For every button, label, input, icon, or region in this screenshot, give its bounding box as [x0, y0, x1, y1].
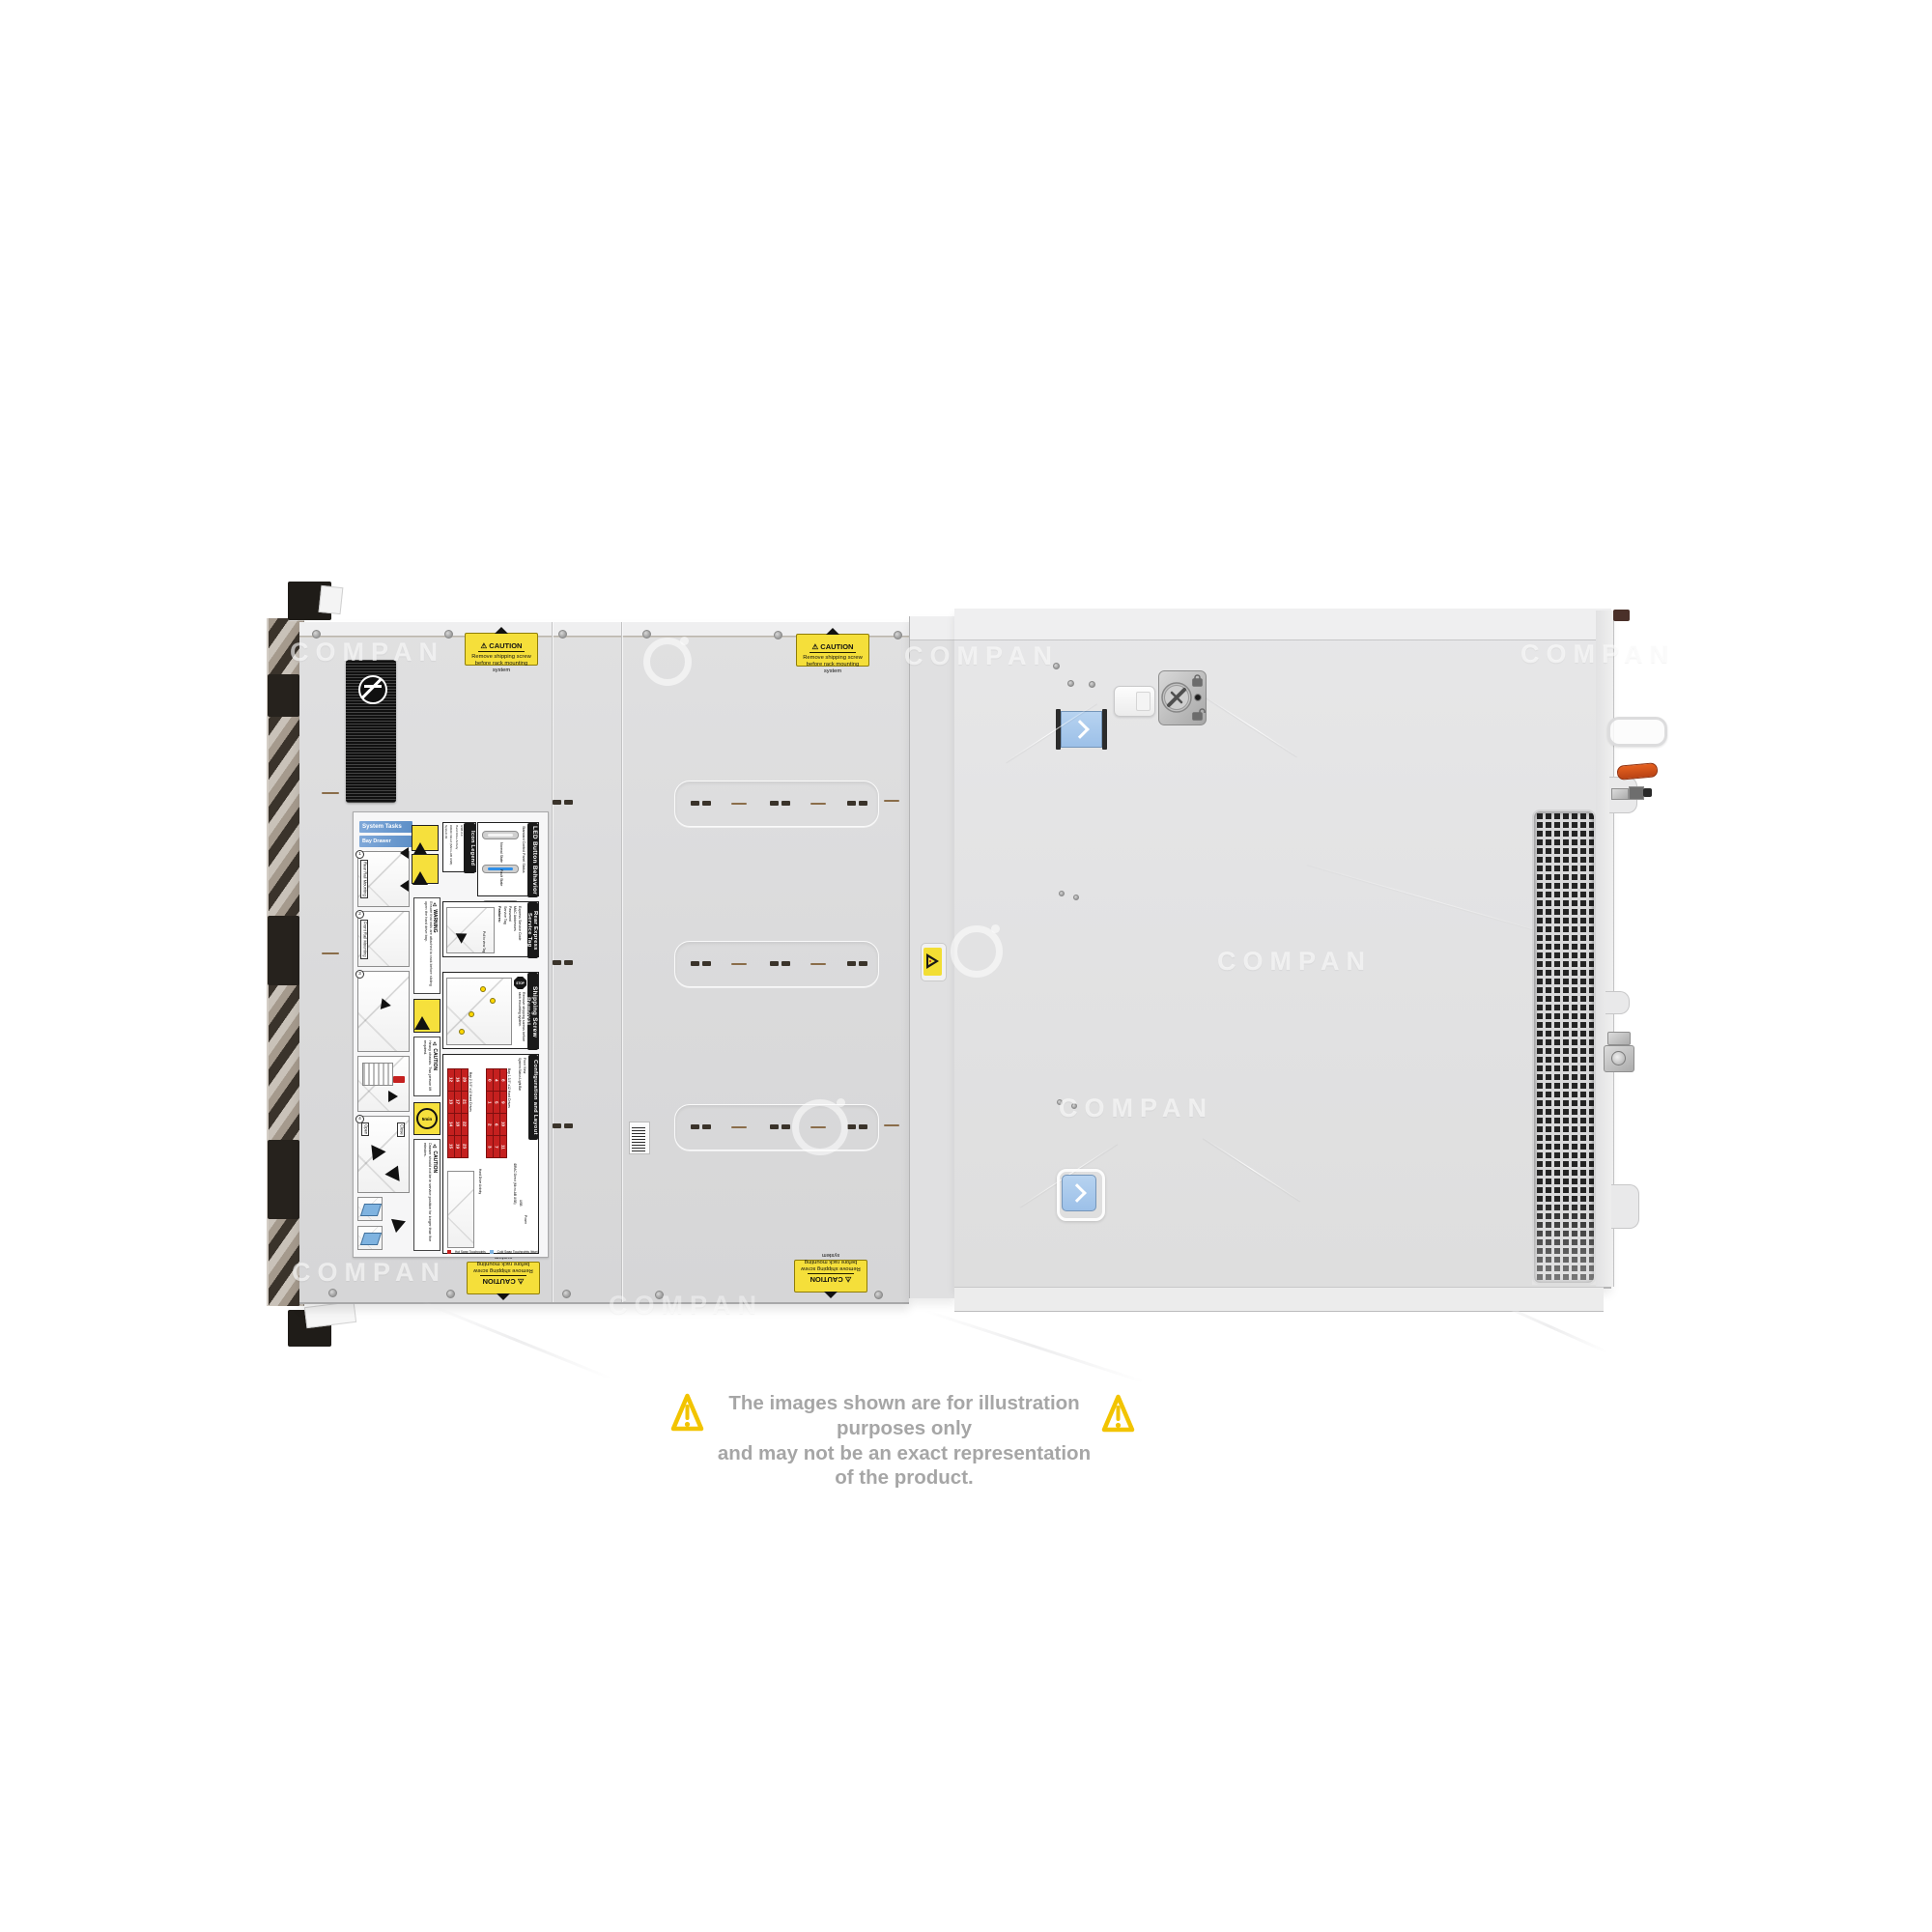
led-behavior-title: LED Button Behavior: [527, 823, 538, 897]
drive-number-cell: 23: [462, 1136, 468, 1157]
feature-item: Password: [508, 906, 512, 954]
rail-dark-block: [268, 916, 299, 985]
caution-sticker: ⚠ CAUTION Remove shipping screw before r…: [796, 634, 869, 667]
rivet: [1073, 895, 1079, 900]
config-side-label: Power: [524, 1215, 527, 1224]
barcode-sticker: [629, 1122, 650, 1154]
configuration-title: Configuration and Layout: [528, 1055, 538, 1140]
config-side-label: iDRAC Direct (Micro-AB USB): [513, 1163, 517, 1231]
drive-number-cell: 9: [500, 1092, 506, 1113]
rear-edge-bump: [1611, 1184, 1639, 1229]
step-number: 4: [355, 1115, 364, 1123]
rear-pull-handle: [1607, 717, 1667, 747]
caution-drawer-box: ⚠ CAUTION Drawer should not be in servic…: [413, 1139, 440, 1251]
screw-head: [312, 630, 321, 639]
tip-hazard-pictogram: [412, 854, 439, 884]
rear-lower-latch: [1602, 1032, 1636, 1076]
handle-recess: [674, 781, 879, 827]
legend-cold-swap: Cold Swap Touchpoints (blue): [497, 1250, 538, 1254]
drive-number-cell: 15: [448, 1136, 454, 1157]
screw-head: [562, 1290, 571, 1298]
icon-legend-item: System ID: [444, 825, 448, 871]
led-fault-label: Fault State: [499, 869, 503, 886]
emboss-line: [1207, 697, 1297, 757]
touchpoint-legend: Hot Swap Touchpoints Cold Swap Touchpoin…: [447, 1250, 538, 1254]
release-touchpoint-lower: [1057, 1169, 1105, 1221]
warning-triangle-sticker: [921, 943, 947, 981]
disclaimer-line2: and may not be an exact representation o…: [715, 1441, 1094, 1492]
regulatory-label: [346, 660, 396, 803]
drive-number-cell: 12: [448, 1069, 454, 1091]
icon-legend-item: USB 2.0: [460, 825, 464, 871]
handle-recess: [674, 1104, 879, 1151]
rear-latch-cluster: [1611, 784, 1654, 804]
caution-heavy-text: Heavy chassis. Two person lift required.: [416, 1040, 433, 1094]
screw-head: [558, 630, 567, 639]
drive-number-cell: 7: [494, 1136, 499, 1157]
caution-heavy-box: ⚠ CAUTION Heavy chassis. Two person lift…: [413, 1037, 440, 1096]
feature-item: Express Service Code: [518, 906, 522, 954]
five-minute-badge: 5min: [413, 1102, 440, 1135]
legend-hot-swap: Hot Swap Touchpoints: [455, 1250, 486, 1254]
instruction-illustration: [357, 1056, 410, 1112]
disclaimer-line1: The images shown are for illustration pu…: [715, 1391, 1094, 1441]
reflection-streak: [422, 1301, 611, 1379]
step-tag: Front Rail Mounting: [360, 920, 368, 959]
step-tag: Close: [397, 1122, 405, 1137]
caution-title: ⚠ CAUTION: [478, 641, 526, 652]
led-subtitle: Standard Control Panel Status: [522, 826, 526, 894]
rivet: [1053, 663, 1060, 669]
rivet: [1067, 680, 1074, 687]
shipping-text: Remove shipping screws before rack mount…: [517, 992, 526, 1046]
drive-number-cell: 5: [494, 1092, 499, 1113]
rivet: [1059, 891, 1065, 896]
caution-line1: Remove shipping screw: [466, 654, 537, 661]
blue-latch-button: [1061, 711, 1102, 748]
stop-icon: STOP: [514, 977, 526, 989]
cover-top-flange: [954, 609, 1611, 640]
middle-strip-panel: [909, 616, 956, 1298]
drive-number-cell: 20: [462, 1069, 468, 1091]
screw-head: [444, 630, 453, 639]
disclaimer-text: The images shown are for illustration pu…: [715, 1391, 1094, 1491]
instruction-illustration: Open Close 4: [357, 1116, 410, 1193]
icon-legend-item: iDRAC Direct (Micro-AB USB): [449, 825, 453, 871]
rivet: [1089, 681, 1095, 688]
step-tag: Open: [361, 1122, 369, 1136]
icon-legend-title: Icon Legend: [464, 823, 475, 873]
instruction-illustration: 3: [357, 971, 410, 1052]
key-lock-plate: [1158, 670, 1207, 725]
instruction-illustration: Front Rail Mounting 2: [357, 911, 410, 967]
config-side-label: Hard Drive Activity: [478, 1169, 482, 1227]
slider-latch: [1114, 686, 1155, 717]
screw-head: [655, 1291, 664, 1299]
icon-legend-box: Icon Legend System ID iDRAC Direct (Micr…: [442, 822, 476, 872]
led-behavior-box: LED Button Behavior Standard Control Pan…: [477, 822, 539, 896]
warning-box: ⚠ WARNING Ensure that rails are attached…: [413, 897, 440, 994]
drive-number-cell: 8: [500, 1069, 506, 1091]
drive-number-cell: 16: [455, 1069, 461, 1091]
caution-sticker-flipped: ⚠ CAUTION Remove shipping screw before r…: [467, 1262, 540, 1294]
caution-drawer-text: Drawer should not be in service position…: [416, 1143, 433, 1249]
release-touchpoint-upper: [1056, 709, 1107, 750]
drive-number-cell: 0: [487, 1069, 493, 1091]
drive-number-cell: 10: [500, 1114, 506, 1135]
shipping-screw-box: Shipping Screw Removal STOP Remove shipp…: [442, 972, 539, 1049]
drive-number-cell: 4: [494, 1069, 499, 1091]
orange-release-lever: [1616, 762, 1658, 781]
screw-head: [328, 1289, 337, 1297]
screw-head: [894, 631, 902, 639]
drive-number-cell: 1: [487, 1092, 493, 1113]
rear-dark-tab: [1613, 610, 1630, 621]
bay-drawer-header: Bay Drawer Operation: [359, 836, 412, 847]
drive-number-cell: 13: [448, 1092, 454, 1113]
caution-sticker-flipped: ⚠ CAUTION Remove shipping screw before r…: [794, 1260, 867, 1293]
caution-sticker: ⚠ CAUTION Remove shipping screw before r…: [465, 633, 538, 666]
drive-number-cell: 22: [462, 1114, 468, 1135]
screw-head: [446, 1290, 455, 1298]
bay2-drive-grid: 121620131721141822151923: [447, 1068, 469, 1158]
bezel-bracket-bottom: [304, 1301, 356, 1328]
bezel-bracket-top: [319, 585, 344, 614]
top-cover-right: [954, 609, 1611, 1289]
service-tag-title: Rear Express Service Tag: [527, 902, 538, 958]
screw-head: [874, 1291, 883, 1299]
configuration-box: Configuration and Layout Front View Syst…: [442, 1054, 539, 1254]
drive-number-cell: 17: [455, 1092, 461, 1113]
drive-number-cell: 14: [448, 1114, 454, 1135]
feature-item: MAC Addresses: [513, 906, 517, 954]
vent-fade: [1532, 1198, 1596, 1285]
reflection-streak: [923, 1309, 1144, 1383]
feature-item: Service Tag: [503, 906, 507, 954]
instruction-illustration: [357, 1197, 383, 1221]
caution-line2: before rack mounting system: [466, 661, 537, 674]
blue-latch-button: [1062, 1175, 1096, 1211]
warning-triangle-icon: [1100, 1391, 1136, 1441]
drive-number-cell: 18: [455, 1114, 461, 1135]
config-side-label: System Status Light Bar: [518, 1058, 522, 1135]
warning-triangle-icon: [669, 1390, 705, 1440]
instruction-illustration: Rear Rail Mounting 1: [357, 851, 410, 907]
icon-legend-item: Hard Drive Activity: [455, 825, 459, 871]
drive-number-cell: 3: [487, 1136, 493, 1157]
chevron-right-icon: [1067, 1183, 1087, 1203]
led-normal-label: Normal State: [499, 842, 503, 863]
drive-number-cell: 11: [500, 1136, 506, 1157]
rivet: [1057, 1099, 1063, 1105]
tip-hazard-pictogram: [412, 825, 439, 851]
shipping-title: Shipping Screw Removal: [527, 973, 538, 1050]
top-cover-left: ⚠ CAUTION Remove shipping screw before r…: [299, 622, 909, 1304]
system-tasks-header: System Tasks: [359, 821, 412, 833]
instruction-illustration: [357, 1226, 383, 1250]
no-stacking-icon: [358, 675, 387, 704]
bay2-label: Bay 2 3.5" x12 Hard Drives: [469, 1072, 472, 1161]
rear-edge-bump: [1605, 991, 1630, 1014]
rivet: [1071, 1103, 1077, 1109]
drive-number-cell: 6: [494, 1114, 499, 1135]
drive-number-cell: 2: [487, 1114, 493, 1135]
step-number: 2: [355, 910, 364, 919]
features-title: Features:: [497, 906, 501, 923]
five-min-label: 5min: [416, 1108, 438, 1129]
emboss-line: [1307, 864, 1548, 934]
rail-dark-block: [268, 674, 299, 717]
service-tag-box: Rear Express Service Tag Features: Servi…: [442, 901, 539, 957]
service-instruction-label: System Tasks Bay Drawer Operation Rear R…: [353, 811, 549, 1258]
handle-recess: [674, 941, 879, 987]
screw-head: [774, 631, 782, 639]
step-number: 1: [355, 850, 364, 859]
step-number: 3: [355, 970, 364, 979]
screw-head: [642, 630, 651, 639]
emboss-line: [1203, 1137, 1300, 1201]
drive-number-cell: 21: [462, 1092, 468, 1113]
cover-seam: [621, 622, 622, 1302]
warning-text: Ensure that rails are attached to rack b…: [416, 901, 434, 992]
pull-tag-note: Pull to view Tag: [482, 931, 486, 952]
step-tag: Rear Rail Mounting: [360, 860, 368, 898]
chevron-right-icon: [1070, 720, 1090, 739]
bay1-drive-grid: 04815926103711: [486, 1068, 507, 1158]
rail-dark-block: [268, 1140, 299, 1219]
led-bar-off: [482, 831, 519, 839]
product-photo-stage: ⚠ CAUTION Remove shipping screw before r…: [0, 0, 1932, 1932]
front-view-label: Front View: [523, 1058, 526, 1073]
bay1-label: Bay 1 3.5" x12 Hard Drives: [507, 1068, 511, 1161]
tip-hazard-pictogram: [413, 999, 440, 1033]
config-side-label: USB: [519, 1200, 523, 1207]
drive-number-cell: 19: [455, 1136, 461, 1157]
